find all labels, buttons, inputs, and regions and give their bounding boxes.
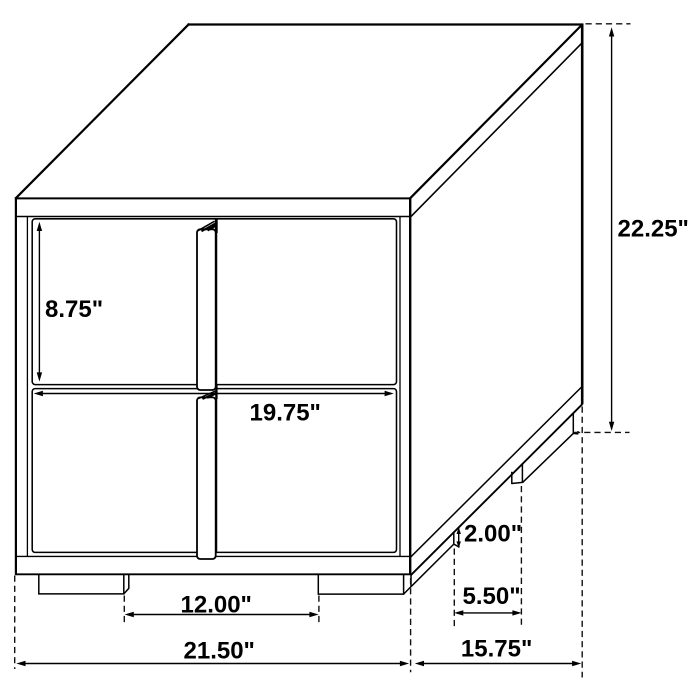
- svg-text:2.00": 2.00": [464, 521, 522, 548]
- svg-text:21.50": 21.50": [184, 637, 255, 664]
- svg-text:5.50": 5.50": [463, 583, 521, 610]
- svg-text:19.75": 19.75": [250, 400, 321, 427]
- svg-text:15.75": 15.75": [461, 636, 532, 663]
- svg-text:8.75": 8.75": [45, 296, 103, 323]
- svg-text:12.00": 12.00": [181, 592, 252, 619]
- svg-text:22.25": 22.25": [618, 216, 689, 243]
